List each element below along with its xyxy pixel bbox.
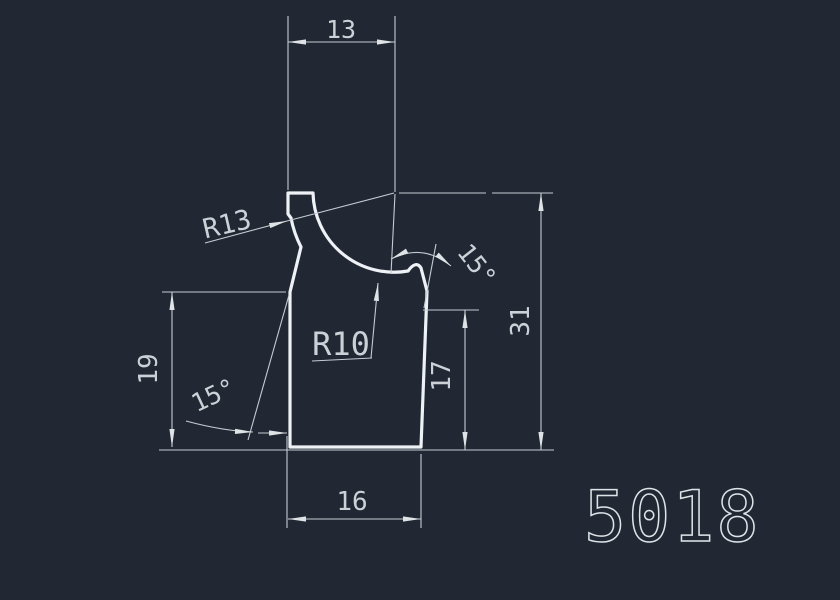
dim-bottom-width-label: 16 (336, 487, 367, 517)
cad-canvas: 13 31 19 17 16 R13 R10 (0, 0, 840, 600)
dim-left-height-label: 19 (134, 353, 164, 384)
dim-right-height-label: 17 (427, 360, 457, 391)
dim-top-width-label: 13 (326, 15, 356, 44)
part-number: 5018 (584, 476, 761, 558)
dim-overall-height-label: 31 (506, 305, 536, 336)
dim-radius-r10-label: R10 (312, 325, 370, 363)
